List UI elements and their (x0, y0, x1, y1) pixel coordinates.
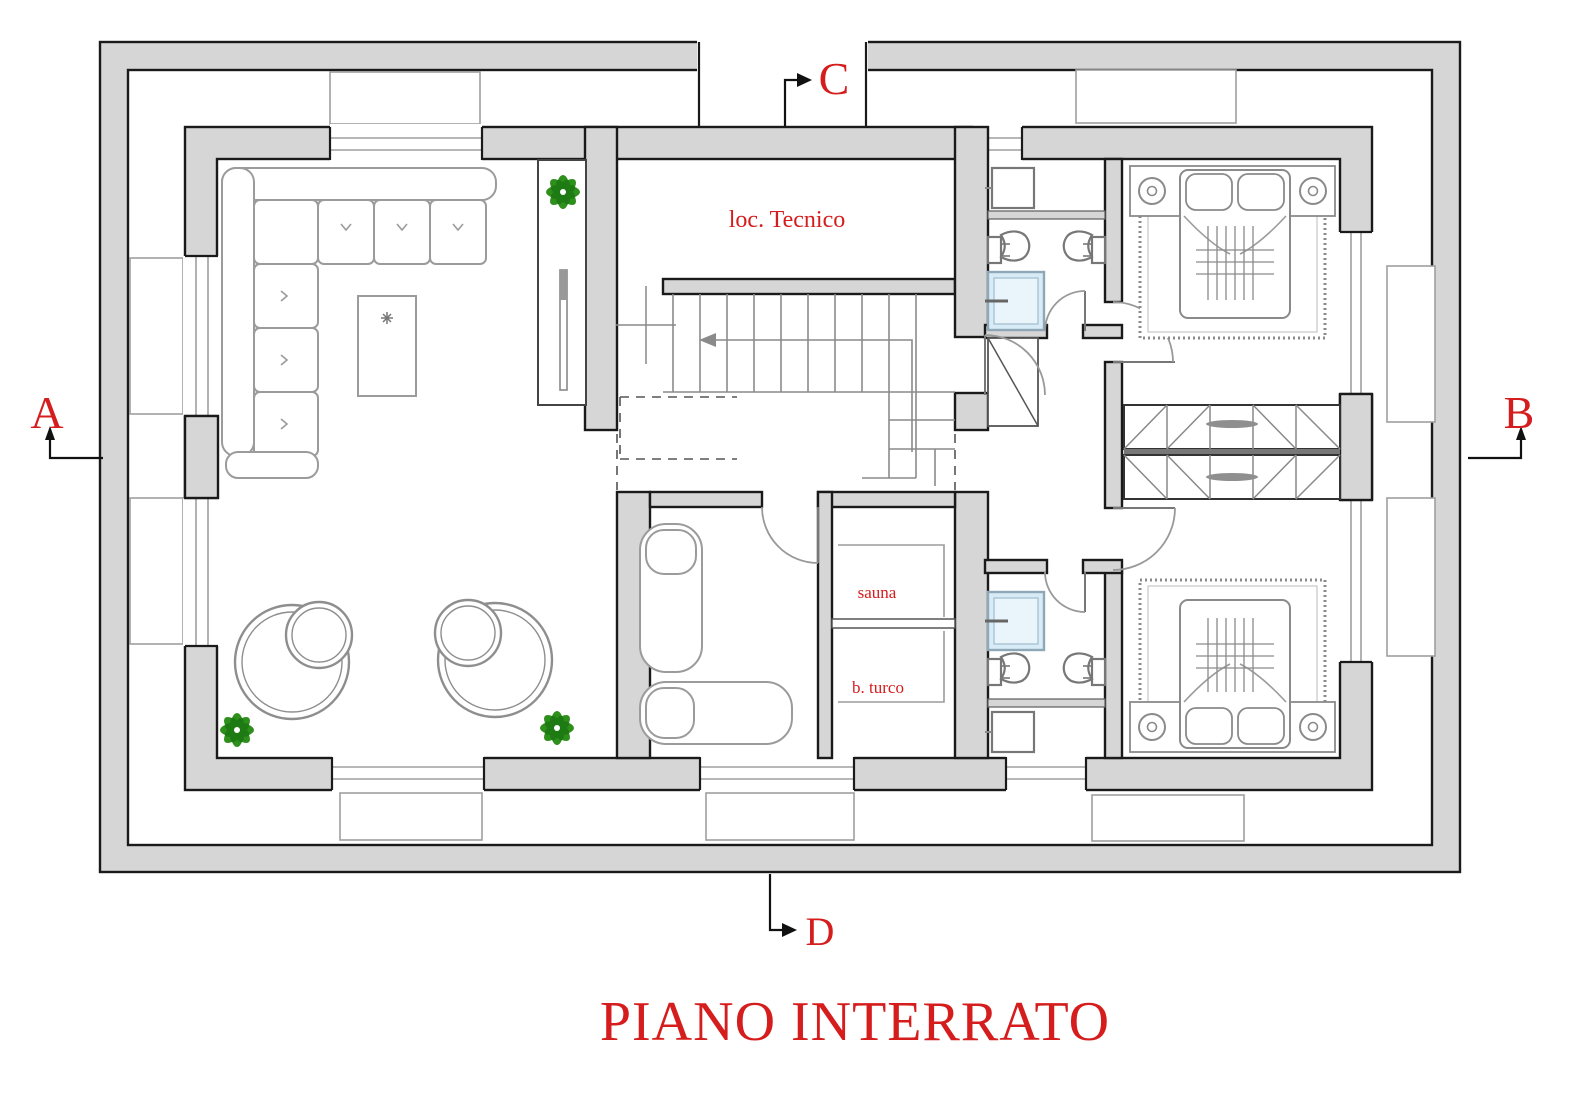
bathroom-divider (988, 699, 1105, 707)
pillow (1238, 174, 1284, 210)
sauna-divider-wall (832, 619, 955, 628)
closet-under-stairs (988, 338, 1038, 426)
bathroom-bottom-door (1045, 572, 1085, 612)
section-marker-d: D (770, 874, 834, 954)
drawer-handle (1206, 473, 1258, 481)
section-label-c: C (819, 53, 850, 104)
window-well (1076, 70, 1236, 123)
toilet-icon (1064, 653, 1105, 685)
window-well (1092, 795, 1244, 841)
plant-icon (540, 711, 574, 745)
floor-plan-drawing: A B C D loc. Tecnico sauna b. turco PIAN… (0, 0, 1580, 1117)
room-label-turkish-bath: b. turco (852, 678, 904, 697)
wall-pier (185, 416, 218, 498)
shower-icon (985, 272, 1044, 330)
crescent-chair-left (235, 602, 352, 719)
lounger-vertical (640, 524, 702, 672)
floor-plan-page: A B C D loc. Tecnico sauna b. turco PIAN… (0, 0, 1580, 1117)
toilet-icon (1064, 231, 1105, 263)
drawer-handle (1206, 420, 1258, 428)
crescent-chair-right (435, 600, 552, 717)
bidet-icon (988, 653, 1029, 685)
section-label-d: D (806, 909, 835, 954)
window-well (130, 258, 183, 414)
pillow (1238, 708, 1284, 744)
wardrobe-top (1124, 405, 1340, 449)
boiler-icon (992, 712, 1034, 752)
stair-cut-line (620, 397, 737, 459)
section-marker-b: B (1468, 387, 1534, 458)
bidet-icon (988, 231, 1029, 263)
window-well (130, 498, 183, 644)
plant-icon (546, 175, 580, 209)
pillow (1186, 708, 1232, 744)
wall-pier (1340, 394, 1372, 500)
pillow (1186, 174, 1232, 210)
staircase (616, 286, 955, 486)
window-well (340, 793, 482, 840)
window-well (706, 793, 854, 840)
bathroom-divider (988, 211, 1105, 219)
wardrobe-bottom (1124, 455, 1340, 499)
window-well (1387, 498, 1435, 656)
room-label-sauna: sauna (858, 583, 897, 602)
lounger-horizontal (640, 682, 792, 744)
coffee-table (358, 296, 416, 396)
plant-icon (220, 713, 254, 747)
room-label-technical: loc. Tecnico (729, 207, 846, 233)
shower-icon (985, 592, 1044, 650)
bedroom-bottom (1130, 580, 1335, 752)
bathroom-top-door (1045, 291, 1085, 331)
section-label-b: B (1504, 387, 1535, 438)
bathroom-bottom (985, 572, 1105, 752)
page-title: PIANO INTERRATO (600, 991, 1110, 1053)
window-well (330, 72, 480, 124)
opening-dashed-lines (617, 434, 955, 490)
relax-room-door (762, 507, 818, 563)
section-label-a: A (30, 387, 63, 438)
section-marker-a: A (30, 387, 103, 458)
bedroom-top (1130, 166, 1335, 338)
boiler-icon (992, 168, 1034, 208)
window-well (1387, 266, 1435, 422)
